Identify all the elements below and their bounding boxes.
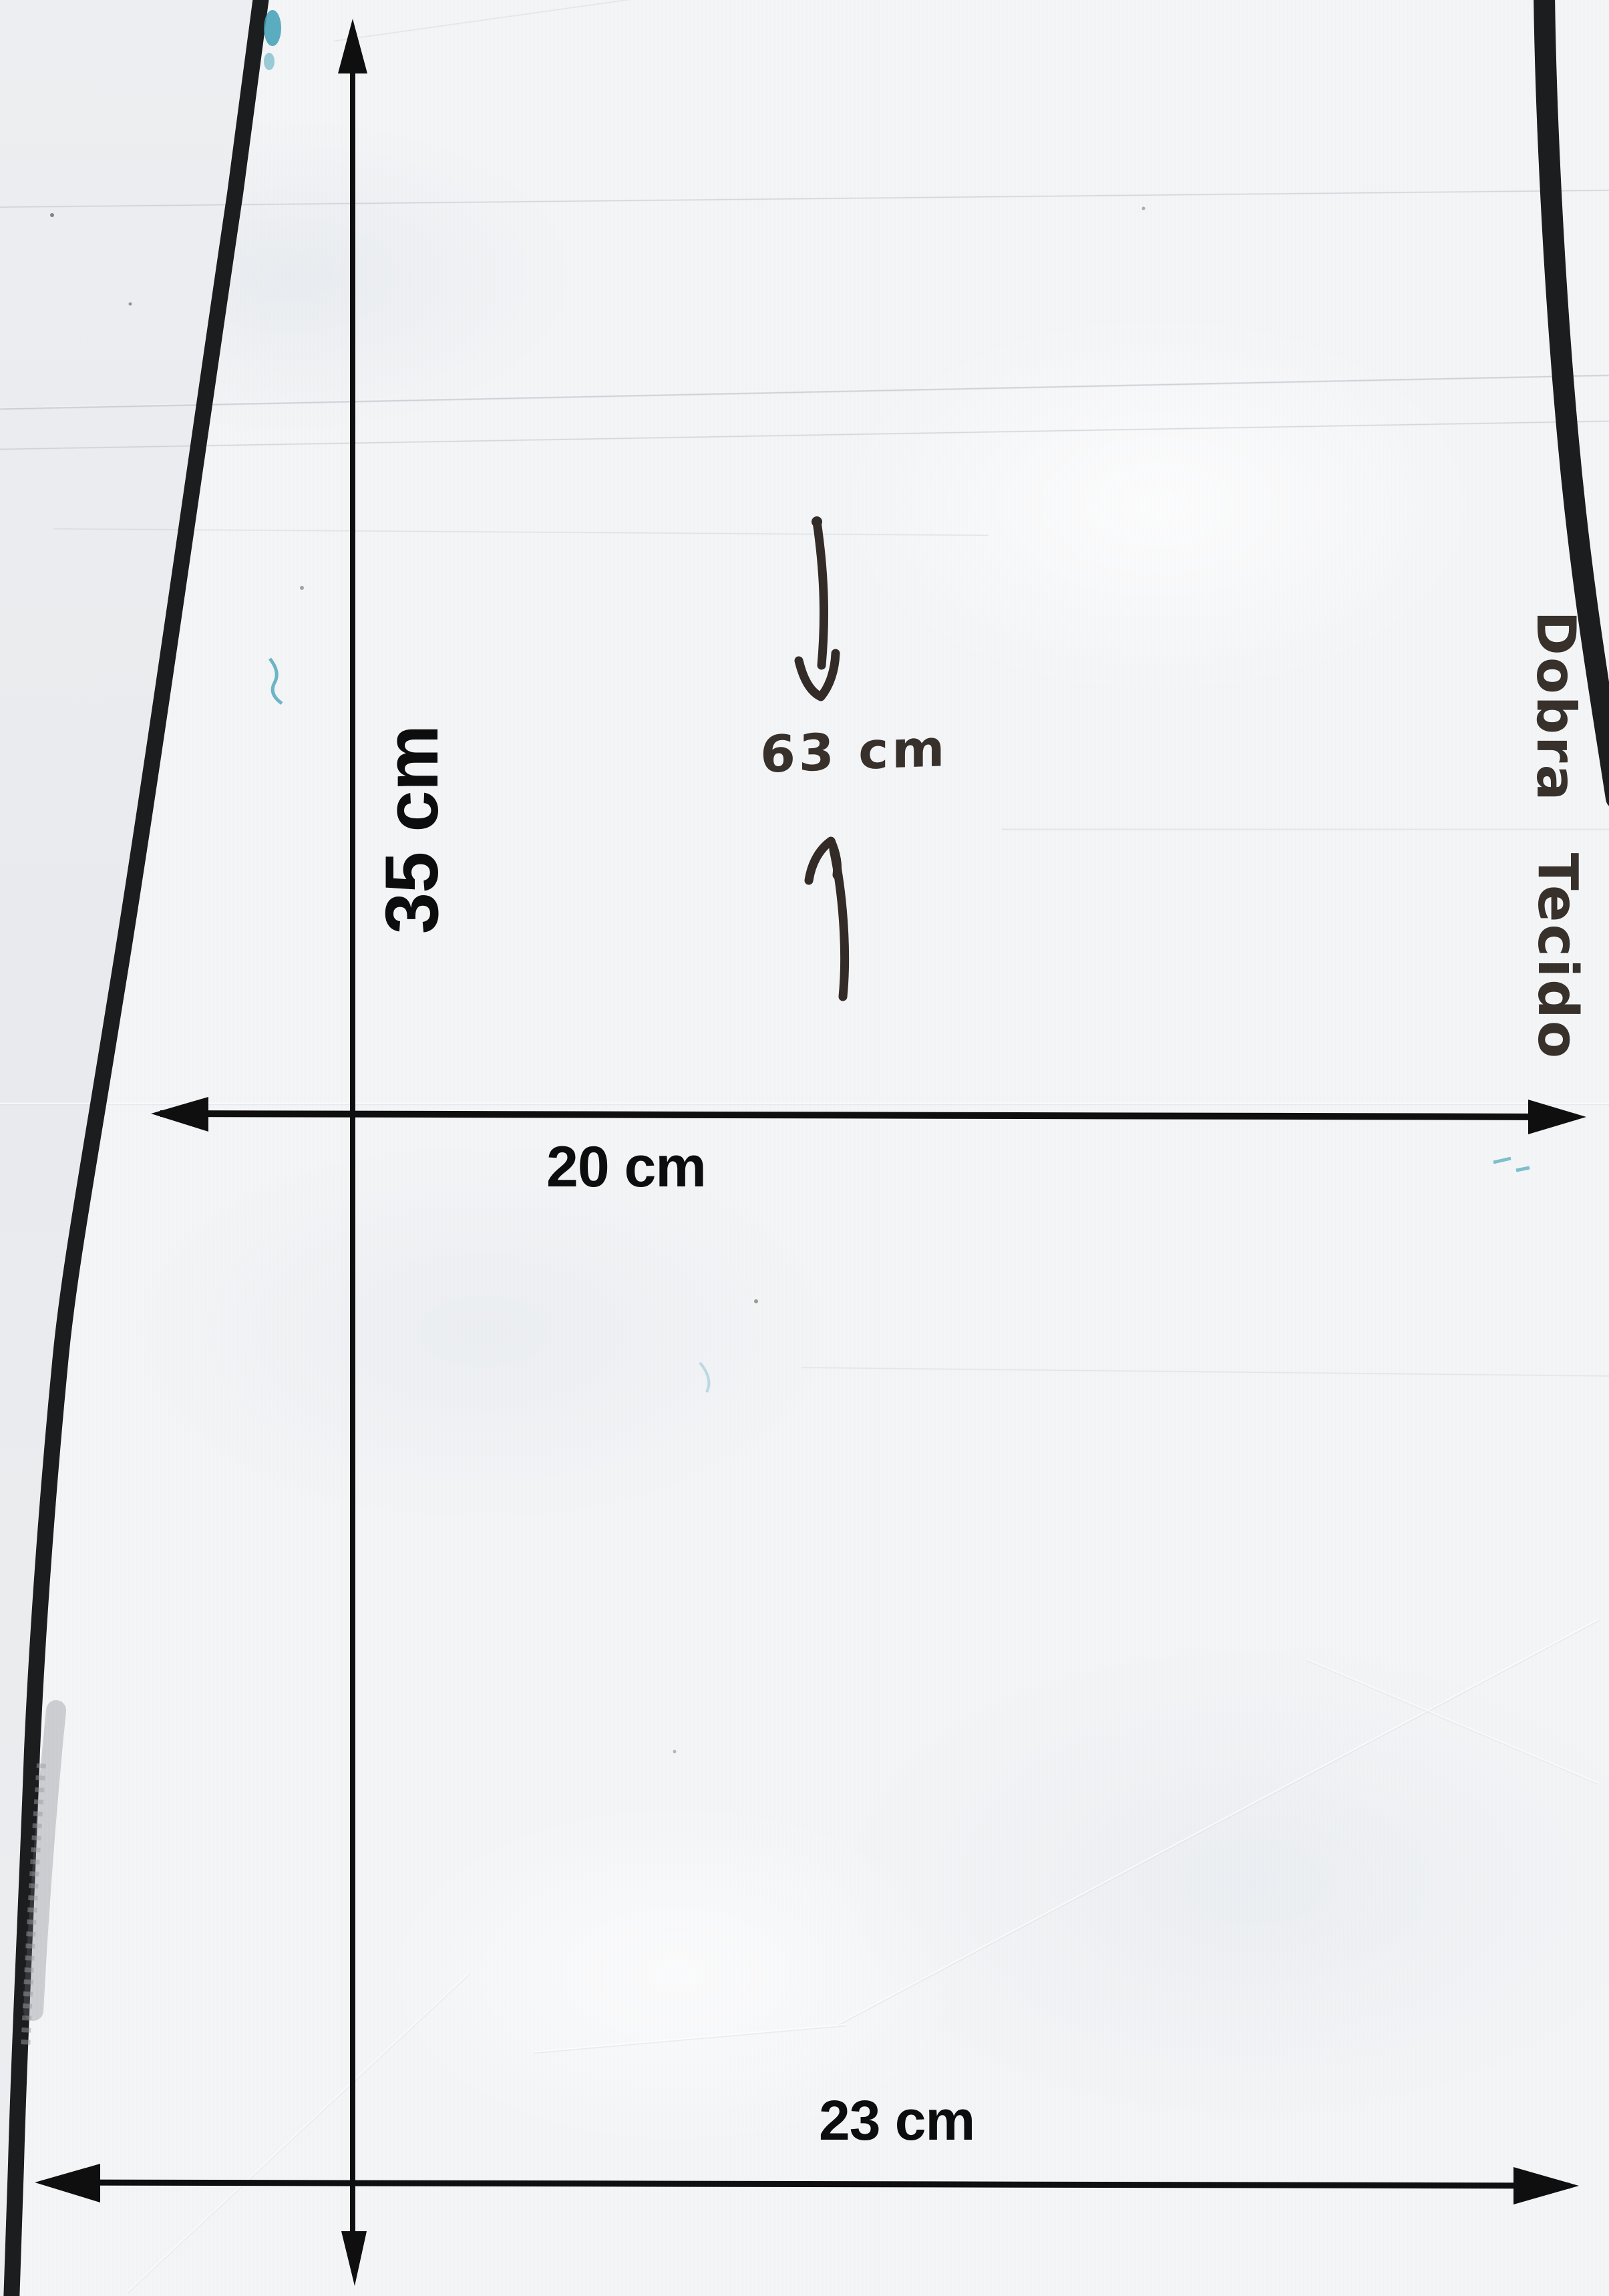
- handwritten-down-arrow: [799, 516, 836, 697]
- scanned-sewing-pattern: 35 cm 20 cm 23 cm 63 cm Dobra Tecido: [0, 0, 1609, 2296]
- arrowhead-up-icon: [338, 19, 367, 73]
- arrowhead-down-icon: [341, 2231, 367, 2286]
- teal-ink-squiggle: [270, 659, 282, 703]
- arrowhead-left-icon: [151, 1097, 208, 1132]
- ink-drawing: [0, 0, 1609, 2296]
- fold-note-word-dobra: Dobra: [1519, 593, 1592, 820]
- ink-speck: [673, 1750, 677, 1754]
- teal-ink-dashes: [1493, 1158, 1530, 1170]
- fold-note-word-tecido: Tecido: [1520, 830, 1594, 1084]
- arrowhead-left-icon: [35, 2164, 100, 2202]
- horizontal-dimension-arrow-20cm: [151, 1097, 1586, 1134]
- ink-speck: [50, 213, 54, 217]
- vertical-dimension-arrow-35cm: [338, 19, 367, 2286]
- vertical-dimension-label: 35 cm: [372, 689, 452, 970]
- teal-ink-smudge: [700, 1363, 709, 1392]
- handwritten-up-arrow: [809, 837, 845, 997]
- ink-speck: [129, 303, 132, 306]
- bottom-dimension-arrow-23cm: [35, 2164, 1579, 2204]
- left-fabric-edge-marker-line: [11, 0, 262, 2296]
- ink-speck: [300, 586, 304, 590]
- middle-width-label: 20 cm: [546, 1134, 706, 1200]
- arrowhead-right-icon: [1513, 2167, 1579, 2204]
- teal-ink-blob: [264, 10, 281, 46]
- bottom-width-label: 23 cm: [819, 2088, 974, 2153]
- arrowhead-right-icon: [1528, 1100, 1586, 1134]
- teal-ink-blob: [264, 53, 275, 70]
- handwritten-length-label: 63 cm: [760, 718, 948, 784]
- ink-speck: [1142, 207, 1145, 210]
- ink-speck: [754, 1299, 758, 1303]
